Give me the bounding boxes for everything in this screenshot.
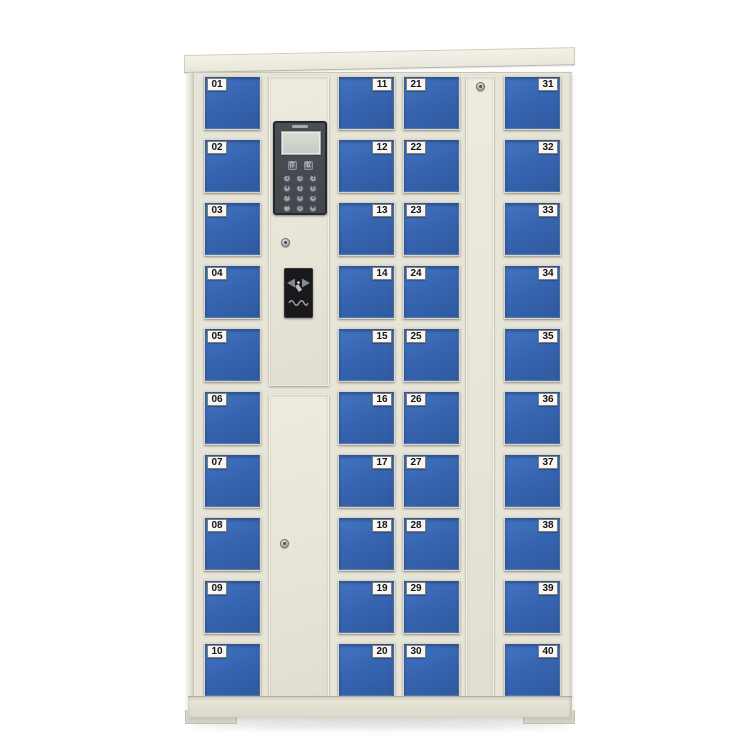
locker-door-05[interactable]: 05	[204, 328, 261, 382]
locker-slot: 28	[403, 517, 460, 571]
locker-door-30[interactable]: 30	[403, 643, 460, 697]
locker-door-33[interactable]: 33	[504, 202, 561, 256]
locker-door-21[interactable]: 21	[403, 76, 460, 130]
locker-number-label: 15	[372, 330, 392, 343]
keypad-key-3[interactable]: 3	[310, 175, 317, 182]
locker-door-29[interactable]: 29	[403, 580, 460, 634]
locker-number-label: 24	[406, 267, 426, 280]
cabinet-body: 01020304050607080910 存取 123456789*0#	[188, 72, 572, 717]
locker-number-label: 01	[207, 78, 227, 91]
keypad-key-#[interactable]: #	[310, 205, 317, 212]
locker-door-38[interactable]: 38	[504, 517, 561, 571]
locker-door-25[interactable]: 25	[403, 328, 460, 382]
locker-door-26[interactable]: 26	[403, 391, 460, 445]
locker-number-label: 36	[538, 393, 558, 406]
locker-number-label: 37	[538, 456, 558, 469]
locker-number-label: 31	[538, 78, 558, 91]
locker-door-28[interactable]: 28	[403, 517, 460, 571]
locker-number-label: 30	[406, 645, 426, 658]
trim-door	[466, 76, 494, 697]
locker-door-02[interactable]: 02	[204, 139, 261, 193]
locker-door-32[interactable]: 32	[504, 139, 561, 193]
locker-door-13[interactable]: 13	[338, 202, 395, 256]
locker-door-34[interactable]: 34	[504, 265, 561, 319]
locker-number-label: 08	[207, 519, 227, 532]
locker-slot: 15	[338, 328, 395, 382]
locker-door-17[interactable]: 17	[338, 454, 395, 508]
locker-door-18[interactable]: 18	[338, 517, 395, 571]
locker-slot: 38	[504, 517, 561, 571]
locker-number-label: 33	[538, 204, 558, 217]
keypad-key-0[interactable]: 0	[297, 205, 304, 212]
locker-number-label: 25	[406, 330, 426, 343]
keypad-key-9[interactable]: 9	[310, 195, 317, 202]
keypad: 123456789*0#	[284, 175, 317, 212]
locker-slot: 25	[403, 328, 460, 382]
cabinet-top-cap	[184, 47, 575, 73]
locker-number-label: 10	[207, 645, 227, 658]
base-panel	[188, 696, 572, 717]
locker-door-36[interactable]: 36	[504, 391, 561, 445]
locker-number-label: 38	[538, 519, 558, 532]
locker-slot: 23	[403, 202, 460, 256]
keypad-key-4[interactable]: 4	[284, 185, 291, 192]
locker-door-22[interactable]: 22	[403, 139, 460, 193]
locker-slot: 06	[204, 391, 261, 445]
locker-slot: 13	[338, 202, 395, 256]
side-trim-column	[466, 76, 494, 697]
locker-number-label: 22	[406, 141, 426, 154]
control-panel: 存取 123456789*0#	[273, 121, 327, 215]
locker-number-label: 03	[207, 204, 227, 217]
keyhole-lock-icon[interactable]	[281, 238, 290, 247]
locker-slot: 18	[338, 517, 395, 571]
locker-slot: 03	[204, 202, 261, 256]
locker-door-16[interactable]: 16	[338, 391, 395, 445]
locker-number-label: 19	[372, 582, 392, 595]
locker-number-label: 21	[406, 78, 426, 91]
locker-number-label: 27	[406, 456, 426, 469]
locker-number-label: 02	[207, 141, 227, 154]
ground-shadow	[192, 719, 568, 728]
locker-slot: 24	[403, 265, 460, 319]
door-column-4: 31323334353637383940	[504, 76, 561, 697]
locker-number-label: 11	[372, 78, 392, 91]
locker-number-label: 14	[372, 267, 392, 280]
service-door[interactable]	[269, 394, 329, 697]
locker-slot: 02	[204, 139, 261, 193]
locker-slot: 11	[338, 76, 395, 130]
locker-door-19[interactable]: 19	[338, 580, 395, 634]
locker-door-07[interactable]: 07	[204, 454, 261, 508]
locker-door-12[interactable]: 12	[338, 139, 395, 193]
control-door: 存取 123456789*0#	[269, 76, 329, 386]
locker-door-24[interactable]: 24	[403, 265, 460, 319]
control-column: 存取 123456789*0#	[269, 76, 329, 697]
locker-slot: 19	[338, 580, 395, 634]
keypad-key-1[interactable]: 1	[284, 175, 291, 182]
locker-number-label: 18	[372, 519, 392, 532]
door-column-2: 11121314151617181920	[338, 76, 395, 697]
card-reader[interactable]	[284, 268, 313, 318]
locker-slot: 32	[504, 139, 561, 193]
locker-slot: 36	[504, 391, 561, 445]
locker-number-label: 34	[538, 267, 558, 280]
keypad-key-6[interactable]: 6	[310, 185, 317, 192]
locker-door-20[interactable]: 20	[338, 643, 395, 697]
locker-slot: 34	[504, 265, 561, 319]
locker-number-label: 04	[207, 267, 227, 280]
locker-slot: 01	[204, 76, 261, 130]
keypad-key-5[interactable]: 5	[297, 185, 304, 192]
locker-number-label: 09	[207, 582, 227, 595]
locker-slot: 09	[204, 580, 261, 634]
locker-door-23[interactable]: 23	[403, 202, 460, 256]
locker-slot: 07	[204, 454, 261, 508]
locker-slot: 35	[504, 328, 561, 382]
locker-number-label: 07	[207, 456, 227, 469]
locker-door-04[interactable]: 04	[204, 265, 261, 319]
locker-columns: 01020304050607080910 存取 123456789*0#	[188, 76, 561, 697]
locker-door-15[interactable]: 15	[338, 328, 395, 382]
locker-number-label: 40	[538, 645, 558, 658]
locker-slot: 17	[338, 454, 395, 508]
locker-slot: 10	[204, 643, 261, 697]
locker-door-35[interactable]: 35	[504, 328, 561, 382]
locker-door-01[interactable]: 01	[204, 76, 261, 130]
swipe-card-icon	[285, 270, 312, 316]
locker-door-09[interactable]: 09	[204, 580, 261, 634]
locker-number-label: 13	[372, 204, 392, 217]
locker-slot: 20	[338, 643, 395, 697]
locker-door-31[interactable]: 31	[504, 76, 561, 130]
locker-number-label: 06	[207, 393, 227, 406]
locker-door-11[interactable]: 11	[338, 76, 395, 130]
locker-door-14[interactable]: 14	[338, 265, 395, 319]
locker-slot: 30	[403, 643, 460, 697]
locker-slot: 37	[504, 454, 561, 508]
locker-number-label: 23	[406, 204, 426, 217]
locker-number-label: 32	[538, 141, 558, 154]
locker-slot: 39	[504, 580, 561, 634]
locker-number-label: 20	[372, 645, 392, 658]
keyhole-lock-icon[interactable]	[280, 539, 289, 548]
locker-slot: 33	[504, 202, 561, 256]
keypad-key-2[interactable]: 2	[297, 175, 304, 182]
locker-number-label: 35	[538, 330, 558, 343]
locker-slot: 22	[403, 139, 460, 193]
locker-slot: 29	[403, 580, 460, 634]
locker-slot: 12	[338, 139, 395, 193]
retrieve-key[interactable]: 取	[304, 161, 313, 170]
keypad-key-8[interactable]: 8	[297, 195, 304, 202]
door-column-1: 01020304050607080910	[204, 76, 261, 697]
locker-slot: 40	[504, 643, 561, 697]
locker-slot: 21	[403, 76, 460, 130]
locker-cabinet: 01020304050607080910 存取 123456789*0#	[188, 50, 572, 717]
deposit-key[interactable]: 存	[288, 161, 297, 170]
locker-number-label: 12	[372, 141, 392, 154]
locker-door-27[interactable]: 27	[403, 454, 460, 508]
keypad-key-7[interactable]: 7	[284, 195, 291, 202]
locker-slot: 14	[338, 265, 395, 319]
locker-number-label: 05	[207, 330, 227, 343]
locker-number-label: 29	[406, 582, 426, 595]
locker-door-03[interactable]: 03	[204, 202, 261, 256]
keyhole-lock-icon[interactable]	[476, 82, 485, 91]
locker-slot: 08	[204, 517, 261, 571]
door-column-3: 21222324252627282930	[403, 76, 460, 697]
locker-slot: 04	[204, 265, 261, 319]
locker-door-10[interactable]: 10	[204, 643, 261, 697]
keypad-key-*[interactable]: *	[284, 205, 291, 212]
locker-slot: 27	[403, 454, 460, 508]
locker-slot: 05	[204, 328, 261, 382]
locker-door-39[interactable]: 39	[504, 580, 561, 634]
locker-number-label: 17	[372, 456, 392, 469]
locker-slot: 16	[338, 391, 395, 445]
locker-door-08[interactable]: 08	[204, 517, 261, 571]
locker-door-40[interactable]: 40	[504, 643, 561, 697]
brand-plate	[292, 125, 308, 128]
display-screen	[281, 131, 321, 155]
function-keys: 存取	[275, 161, 325, 170]
locker-number-label: 39	[538, 582, 558, 595]
locker-number-label: 26	[406, 393, 426, 406]
locker-number-label: 16	[372, 393, 392, 406]
locker-door-06[interactable]: 06	[204, 391, 261, 445]
locker-number-label: 28	[406, 519, 426, 532]
locker-slot: 31	[504, 76, 561, 130]
locker-slot: 26	[403, 391, 460, 445]
locker-door-37[interactable]: 37	[504, 454, 561, 508]
